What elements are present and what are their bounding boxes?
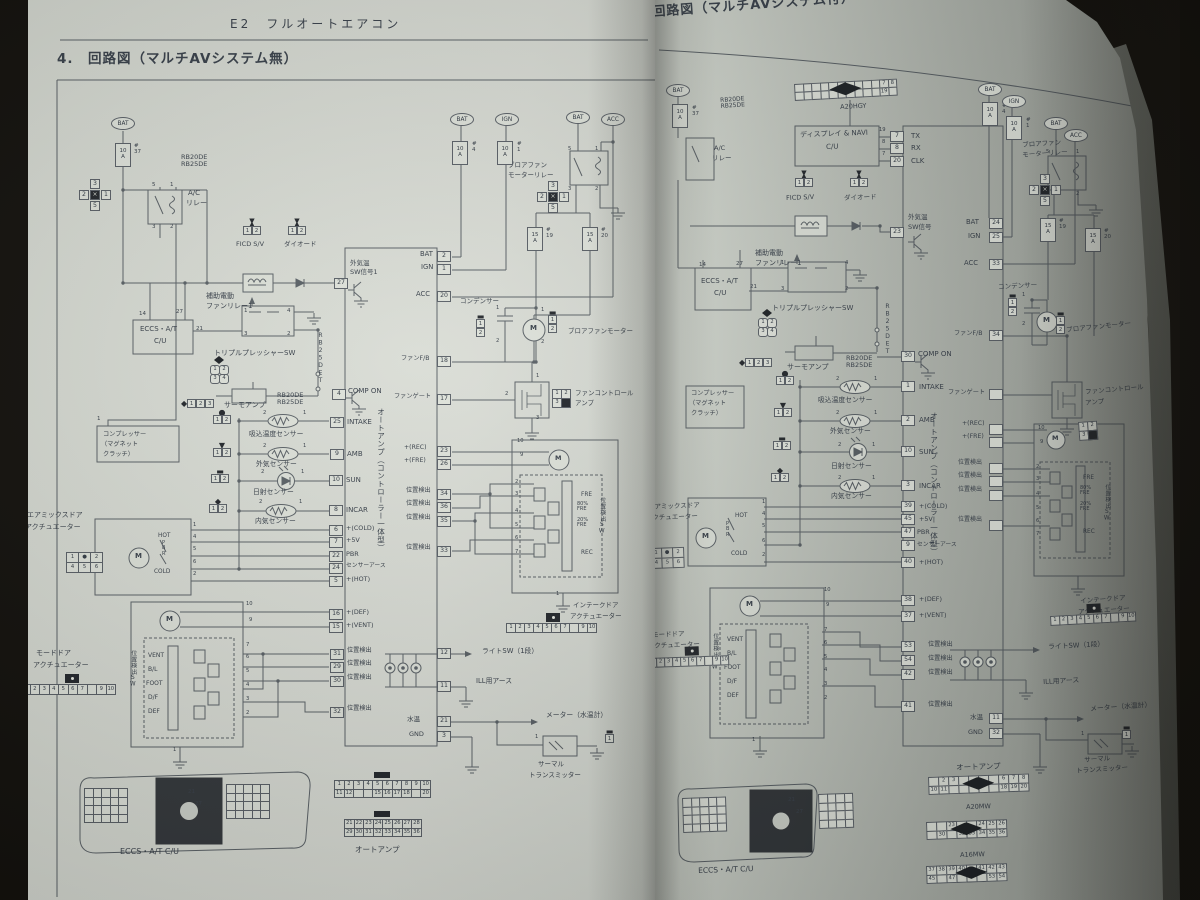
text-label: 4 [762,512,765,518]
text-label: 6 [246,655,249,661]
pin-cell: 11 [437,681,451,692]
text-label: アンプ [575,400,594,407]
connector-pin: 10 [587,623,597,633]
text-label: 位置検出 [958,473,982,479]
text-label: D/F [727,679,737,685]
text-label: 3 [781,287,784,293]
text-label: 1 [874,411,877,417]
text-label: ファンF/B [954,331,982,338]
text-label: トリプルプレッシャーSW [772,305,853,313]
text-label: 21 [188,790,195,796]
text-label: 5 [246,669,249,675]
fuse: 15 A [527,227,543,251]
pin-cell: × [548,192,558,202]
text-label: トランスミッター [529,772,581,779]
connector-pin: 1 [774,408,783,417]
pin-cell: 1 [901,381,915,392]
pin-cell: 11 [989,713,1003,724]
power-terminal: IGN [1002,95,1026,108]
text-label: 5 [152,183,156,189]
text-label: 2 [824,696,827,702]
text-label: M [1043,317,1050,325]
text-label: +5V [346,537,360,544]
text-label: 2 [170,225,174,231]
text-label: クラッチ） [103,452,134,459]
text-label: M [555,455,561,462]
connector-pin: 1 [745,358,754,367]
text-label: 21 [788,798,795,804]
text-label: 20% FRE [577,518,588,529]
text-label: 6 [762,539,765,545]
text-label: +(HOT) [346,576,370,583]
pin-cell [989,389,1003,400]
connector-pin [561,398,571,408]
text-label: 14 [139,312,146,318]
incar-sensor-connector: ◆12 [771,469,789,482]
pin-cell: 10 [329,475,343,486]
airmix-actuator: エアミックスドア [27,512,83,520]
text-label: C/U [826,144,839,152]
text-label: ACC [964,260,978,267]
compressor: コンプレッサー [103,432,146,439]
text-label: GND [968,729,983,736]
text-label: 位置検出 [958,487,982,493]
power-terminal: BAT [666,84,690,97]
text-label: # 19 [1059,219,1066,231]
pin-cell: 8 [890,143,904,154]
connector-pin: 2 [804,178,813,187]
condenser: コンデンサー [460,298,499,305]
text-label: 10 [1038,426,1045,432]
text-label: 1 [170,183,174,189]
pin-cell: 5 [90,201,100,211]
pin-cell: 20 [437,291,451,302]
pin-cell: 7 [890,131,904,142]
text-label: 位置検出 [347,706,372,713]
ill-ground: ILL用アース [476,678,512,685]
meter-watertemp: メーター（水温計） [546,712,607,719]
text-label: 1 [872,443,875,449]
connector-pin: 1 [288,226,297,235]
connector-pin: 1 [795,178,804,187]
pin-cell: 16 [329,609,343,620]
text-label: 1 [535,735,538,741]
text-label: 水温 [407,716,420,723]
connector-pin: 2 [780,473,789,482]
text-label: +(VENT) [919,612,946,619]
connector-pin: 2 [754,358,763,367]
text-label: 8 [882,140,885,146]
text-label: 27 [736,262,743,268]
text-label: +(VENT) [346,622,373,629]
text-label: VENT [727,637,743,643]
text-label: 2 [515,480,518,486]
pin-cell: 47 [901,527,915,538]
text-label: ファンリレー1 [755,260,801,268]
pin-cell: 3 [90,179,100,189]
text-label: 1 [874,377,877,383]
dot-marker [65,674,79,683]
bar-marker [374,772,390,778]
auto-amp-connector-label: オートアンプ [956,762,1001,772]
sun-sensor-connector: ▬12 [211,470,229,483]
pin-cell: 25 [989,232,1003,243]
condenser-connector: ▬12 [1008,294,1017,316]
text-label: FRE [1083,475,1094,481]
connector-pin: 2 [783,408,792,417]
fuse: 10 A [115,143,131,167]
text-label: 1 [301,470,304,476]
ac-relay: A/C [188,190,200,198]
text-label: 1 [303,411,306,417]
book-photo: E2 フルオートエアコン 4. 回路図（マルチAVシステム無） RB20DE R… [0,0,1200,900]
text-label: TX [911,133,920,141]
text-label: # 20 [601,228,608,240]
text-label: ファンF/B [401,356,429,363]
connector-pin: 2 [196,399,205,408]
pin-cell: 3 [437,731,451,742]
connector-pin: 2 [222,448,231,457]
connector-pin: 4 [219,374,229,384]
blower-relay: ブロアファン [508,162,547,169]
ficd-sv: FICD S/V [786,194,814,202]
text-label: 9 [1040,440,1043,446]
pin-cell: 34 [437,489,451,500]
text-label: DEF [148,709,160,715]
text-label: VENT [148,653,164,659]
text-label: M [135,553,142,561]
connector-pin: 2 [785,376,794,385]
connector-pin [260,810,270,820]
pin-cell: 31 [330,649,344,660]
text-label: モードドア [652,631,685,639]
pin-cell [989,463,1003,474]
connector-pin: 54 [996,872,1007,882]
power-terminal: IGN [495,113,519,126]
text-label: ファンゲート [394,394,431,401]
text-label: RB25DET [317,332,323,385]
text-label: 2 [263,411,266,417]
sun-sensor: 日射センサー [253,489,294,496]
dot-marker [1086,603,1100,613]
text-label: 2 [836,377,839,383]
connector-pin: 10 [720,655,729,665]
text-label: PBR [346,551,359,558]
text-label: 外気温 [908,214,928,221]
dot-marker [685,646,699,655]
text-label: M [166,616,173,624]
pin-cell: 45 [901,514,915,525]
connector-pin [118,814,128,824]
triple-pressure-sw: トリプルプレッシャーSW [214,350,295,358]
text-label: 9 [826,603,829,609]
text-label: 9 [520,453,523,459]
connector-pin: 2 [222,415,231,424]
pin-cell: 2 [1029,185,1039,195]
power-terminal: ACC [601,113,625,126]
text-label: 80% FRE [1080,486,1091,497]
text-label: RB20DE RB25DE [277,392,303,406]
pin-cell: 12 [437,648,451,659]
text-label: C/U [714,290,726,298]
text-label: 位置検出 [347,661,372,668]
connector-pin: 36 [996,828,1007,838]
text-label: 10 [246,602,253,608]
text-label: 3 [246,697,249,703]
text-label: 80% FRE [577,502,588,513]
text-label: 2 [595,187,598,193]
thermal-connector: ▬1 [1122,726,1131,739]
engine-note: RB20DE RB25DE [181,154,207,168]
text-label: 位置検出 [406,501,431,508]
text-label: +(DEF) [919,596,942,603]
text-label: # 1 [1026,118,1031,130]
text-label: 4 [824,668,827,674]
text-label: IGN [421,264,433,271]
text-label: SUN [346,477,361,485]
text-label: 3 [536,416,539,422]
fuse: 15 A [1040,218,1056,242]
text-label: 補助電動 [755,250,783,258]
fuse: 10 A [497,141,513,165]
text-label: クラッチ） [691,411,722,418]
text-label: 1 [1081,732,1084,738]
text-label: 3 [515,492,518,498]
connector-pin: 3 [205,399,214,408]
text-label: 日射センサー [831,463,872,470]
text-label: 3 [152,225,156,231]
text-label: 6 [824,641,827,647]
text-label: 1 [173,748,176,754]
text-label: ACC [416,291,430,298]
aux-fan-relay: 補助電動 [206,293,234,301]
text-label: RB20DE RB25DE [846,355,872,369]
pin-cell: 30 [330,676,344,687]
sun-sensor-connector: ▬12 [773,437,791,450]
pin-cell: 20 [890,156,904,167]
pin-cell: 21 [437,716,451,727]
text-label: 5 [568,147,571,153]
text-label: RX [911,145,921,153]
ambient-sensor-connector: ▼12 [213,444,231,457]
text-label: +(DEF) [346,609,369,616]
text-label: 1 [299,500,302,506]
text-label: 7 [1036,532,1039,538]
fuse: 10 A [1006,116,1022,140]
text-label: FOOT [724,665,741,671]
text-label: 1 [752,738,755,744]
pin-cell: 1 [437,264,451,275]
text-label: +(REC) [962,421,985,428]
text-label: リレー [186,200,207,208]
eccs-connector-label: ECCS・A/T C/U [120,848,179,857]
text-label: 9 [249,618,252,624]
text-label: # 19 [546,228,553,240]
pin-cell: 3 [901,480,915,491]
text-label: RB25DET [884,303,890,356]
text-label: A16MW [960,851,985,859]
text-label: # 20 [1104,229,1111,241]
text-label: 外気センサー [830,428,871,435]
pin-cell [989,490,1003,501]
text-label: 4 [287,309,291,315]
text-label: CLK [911,158,924,166]
text-label: 1 [303,444,306,450]
connector-pin: 1 [605,734,614,743]
power-terminal: BAT [566,111,590,124]
text-label: アクチュエーター [33,662,89,670]
pin-cell: 39 [901,501,915,512]
text-label: 2 [1076,192,1079,198]
text-label: 6 [515,536,518,542]
pin-cell: 3 [548,181,558,191]
text-label: B/L [148,667,157,673]
text-label: 5 [762,524,765,530]
text-label: P B R [162,541,165,557]
text-label: 1 [541,308,544,314]
pin-cell: 1 [1051,185,1061,195]
text-label: A20MW [966,803,991,811]
text-label: 1 [1022,293,1025,299]
text-label: A/C [714,145,725,152]
text-label: HOT [158,533,170,539]
connector-pin: 1 [209,504,218,513]
connector-pin: 1 [776,376,785,385]
bar-marker [374,811,390,817]
text-label: 2 [287,332,291,338]
ficd-sv: FICD S/V [236,241,264,248]
pin-cell: 17 [437,394,451,405]
connector-pin: 2 [548,324,557,333]
text-label: 水温 [970,714,983,721]
text-label: 1 [556,592,559,598]
text-label: 6 [1036,519,1039,525]
connector-pin: 36 [411,828,422,838]
pin-cell: 25 [330,417,344,428]
connector-pin [717,822,727,832]
text-label: センサーアース [346,563,386,569]
pin-cell: 23 [437,446,451,457]
power-terminal: BAT [978,83,1002,96]
pin-cell: 30 [901,351,915,362]
connector-pin: 10 [106,684,117,695]
pin-cell: 2 [437,251,451,262]
auto-amp: オートアンプ（コントローラー一体型） [377,408,385,552]
pin-cell: × [1040,185,1050,195]
diode-connector: ▼ ▲12 [850,172,868,187]
pin-cell: 1 [559,192,569,202]
pin-cell: 3 [1040,174,1050,184]
connector-pin: 2 [859,178,868,187]
text-label: +(HOT) [919,559,943,566]
text-label: 7 [515,550,518,556]
text-label: 外気温 [350,260,370,267]
text-label: 位置検出 [928,642,953,649]
text-label: 位置検出 [347,648,372,655]
connector-pin: 1 [1056,316,1065,325]
pin-cell: 9 [330,449,344,460]
pin-cell: × [90,190,100,200]
pin-cell: 34 [989,330,1003,341]
connector-pin: 6 [672,557,684,568]
pin-cell: 9 [901,540,915,551]
connector-pin: 1 [243,226,252,235]
text-label: 2 [505,392,508,398]
text-label: GND [409,731,424,738]
text-label: 1 [595,147,598,153]
pin-cell: 24 [989,218,1003,229]
pin-cell: 5 [1040,196,1050,206]
thermal-connector: ▬1 [605,730,614,743]
power-terminal: BAT [1044,117,1068,130]
connector-pin: 4 [767,327,777,337]
ficd-connector: ▼ ▲12 [795,172,813,187]
text-label: 3 [1036,477,1039,483]
connector-pin: 2 [252,226,261,235]
thermo-amp: サーモアンプ [224,402,266,410]
text-label: 2 [259,500,262,506]
connector-pin: 2 [218,504,227,513]
pin-cell: 35 [437,516,451,527]
text-label: 2 [1036,465,1039,471]
text-label: COLD [731,551,747,557]
condenser-connector: ▬12 [476,315,485,337]
text-label: ECCS・A/T [701,278,738,286]
ficd-connector: ▼ ▲12 [243,220,261,235]
pin-cell: 29 [330,662,344,673]
text-label: # 4 [472,142,477,154]
pin-cell: 33 [437,546,451,557]
text-label: 3 [824,682,827,688]
connector-pin: 20 [420,789,431,799]
text-label: IGN [968,233,980,240]
text-label: 内気センサー [831,493,872,500]
pin-cell: 41 [901,701,915,712]
dot-marker [546,613,560,622]
blower-connector: ▬12 [1056,312,1065,334]
fan-control-amp: ファンコントロール [575,390,634,397]
text-label: 2 [541,340,544,346]
text-label: SW信号1 [350,269,378,276]
text-label: +(COLD) [346,525,374,532]
text-label: M [1052,435,1058,442]
fuse: 15 A [582,227,598,251]
pin-cell [989,520,1003,531]
text-label: 2 [845,287,848,293]
connector-pin: 2 [782,441,791,450]
text-label: BAT [966,219,979,226]
pin-cell: 32 [989,728,1003,739]
section-title: 4. 回路図（マルチAVシステム無） [57,52,298,67]
pin-cell: 4 [332,389,346,400]
connector-pin [844,818,854,828]
text-label: +(REC) [404,445,427,452]
text-label: 1 [1076,150,1079,156]
text-label: 7 [246,643,249,649]
connector-pin: 1 [213,415,222,424]
text-label: 2 [261,470,264,476]
text-label: 3 [244,332,248,338]
text-label: 位置検出SW [598,497,604,535]
power-terminal: BAT [111,117,135,130]
pin-cell: 38 [901,595,915,606]
pin-cell: 53 [901,641,915,652]
connector-pin [888,87,898,96]
pin-cell [989,424,1003,435]
text-label: 2 [838,443,841,449]
text-label: 位置検出 [958,460,982,466]
text-label: +(FRE) [962,434,984,441]
